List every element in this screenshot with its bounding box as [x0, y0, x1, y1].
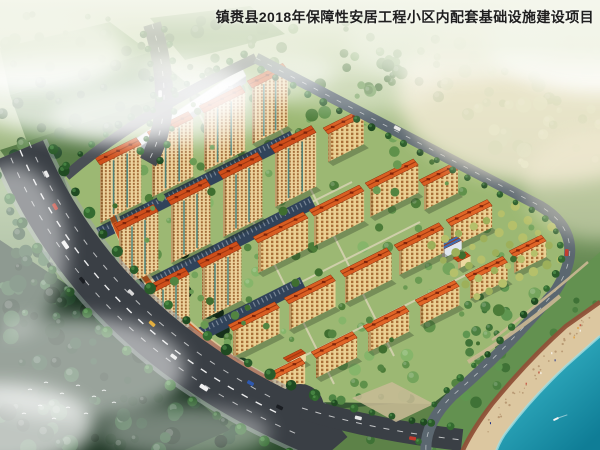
architectural-rendering: 镇赉县2018年保障性安居工程小区内配套基础设施建设项目: [0, 0, 600, 450]
project-title: 镇赉县2018年保障性安居工程小区内配套基础设施建设项目: [216, 7, 594, 27]
site-plan-rendering: [0, 0, 600, 450]
